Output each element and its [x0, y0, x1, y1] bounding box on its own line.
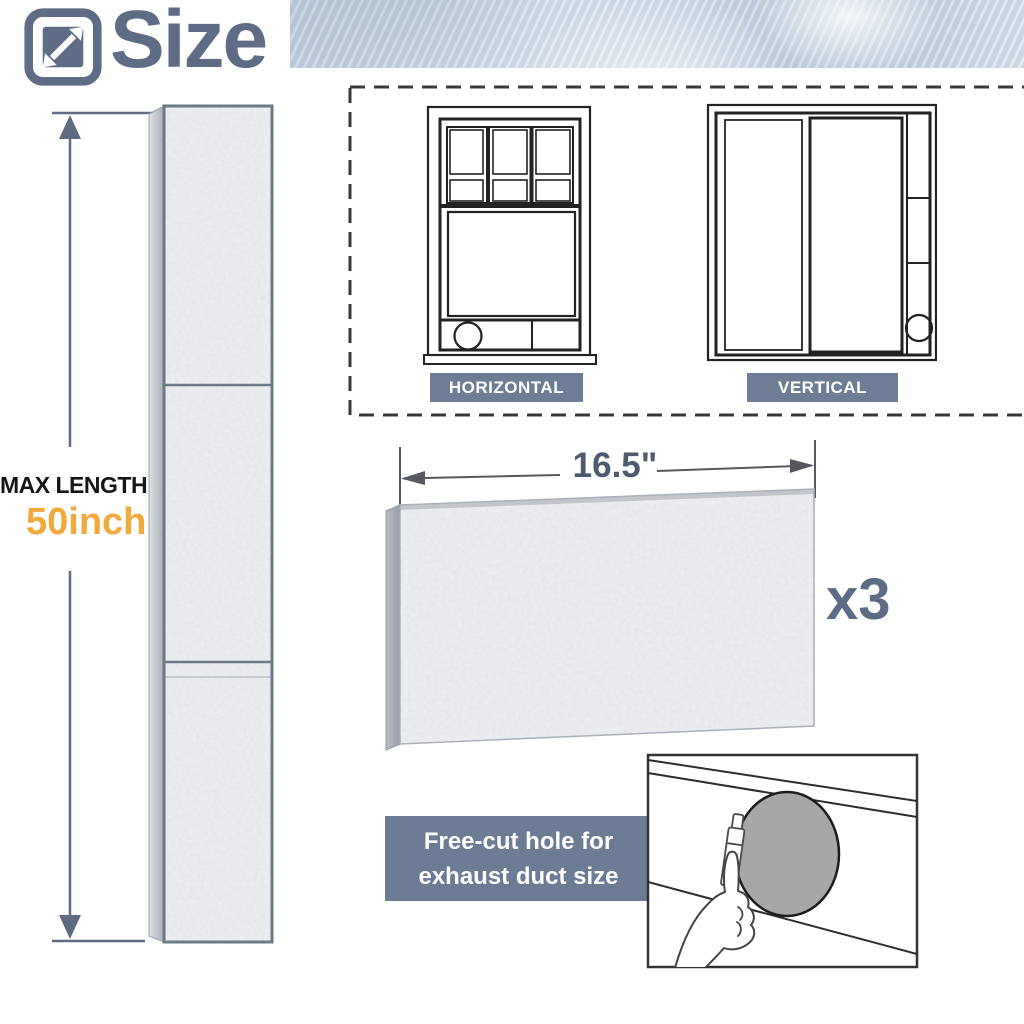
product-size-infographic: Size HORIZONTAL	[0, 0, 1024, 1024]
max-length-value: 50inch	[26, 501, 146, 544]
vertical-window-illustration	[703, 98, 937, 366]
free-cut-illustration	[645, 752, 921, 972]
quantity-label: x3	[826, 566, 891, 633]
panel-width-value: 16.5"	[565, 446, 665, 486]
vertical-window-label: VERTICAL	[747, 373, 898, 402]
foam-panel-horizontal	[381, 483, 825, 753]
free-cut-note-line2: exhaust duct size	[385, 859, 652, 894]
horizontal-window-illustration	[410, 100, 600, 370]
duct-hole-circle	[735, 792, 839, 916]
horizontal-window-label: HORIZONTAL	[430, 373, 583, 402]
free-cut-note-line1: Free-cut hole for	[385, 824, 652, 859]
resize-diagonal-icon	[24, 8, 102, 86]
free-cut-note: Free-cut hole for exhaust duct size	[385, 816, 652, 901]
max-length-label: MAX LENGTH:	[0, 472, 162, 499]
page-title: Size	[110, 0, 266, 84]
banner-image	[290, 0, 1024, 68]
foam-panel-vertical	[147, 104, 275, 945]
